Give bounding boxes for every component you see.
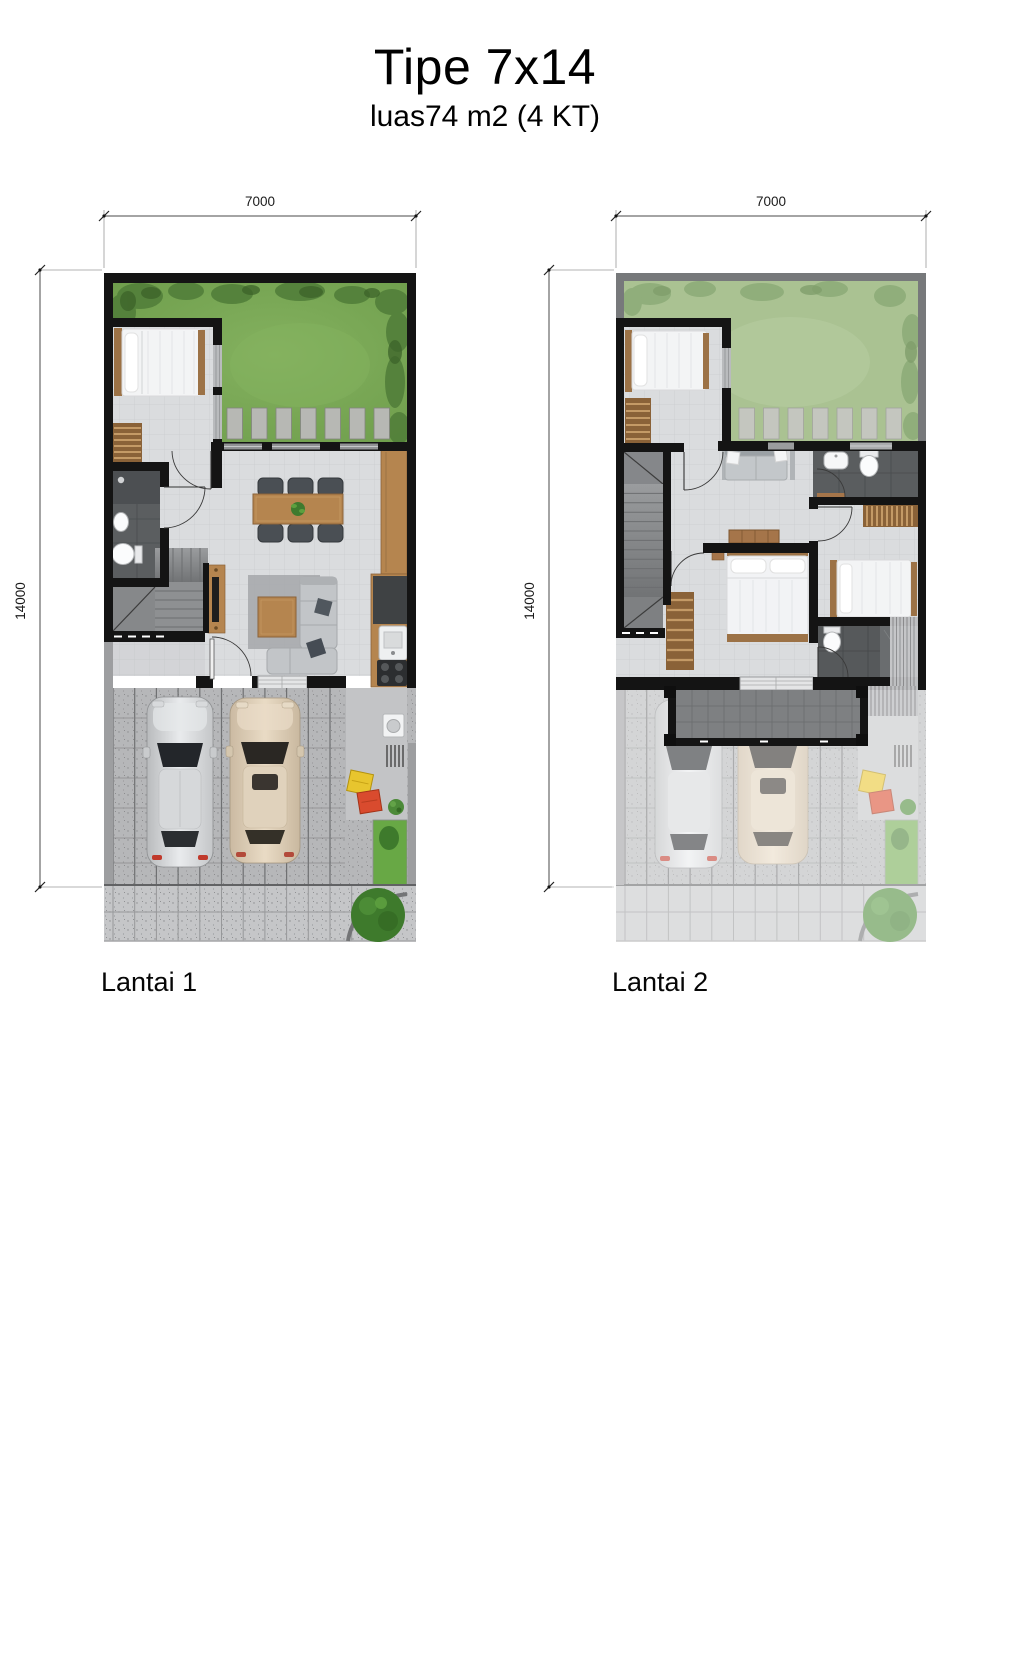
dimension-top: 7000 [611, 194, 931, 268]
kitchen-sink [379, 626, 407, 660]
washing-machine [383, 714, 404, 737]
left-fence [104, 642, 113, 885]
dim-width-label: 7000 [245, 194, 275, 209]
bin-red [357, 790, 382, 814]
sink [114, 513, 129, 532]
wardrobe [625, 398, 651, 444]
stepping-stones [739, 408, 902, 439]
dimension-left: 14000 [522, 265, 614, 892]
garden-windows [224, 444, 378, 450]
tv [212, 577, 219, 622]
bathroom [112, 471, 160, 578]
label-lantai-2: Lantai 2 [612, 967, 708, 998]
sheet-header: Tipe 7x14 luas74 m2 (4 KT) [0, 38, 970, 134]
plan-subtitle: luas74 m2 (4 KT) [0, 100, 970, 134]
hall-dresser [729, 530, 779, 543]
label-lantai-1: Lantai 1 [101, 967, 197, 998]
car-beige [226, 698, 304, 863]
stair-landing [616, 638, 663, 677]
dim-height-label: 14000 [13, 582, 28, 620]
table-plant [291, 502, 305, 516]
balcony [664, 686, 868, 746]
balcony-door [740, 677, 813, 690]
shower-head [118, 477, 124, 483]
coffee-table [258, 597, 296, 637]
loveseat [722, 447, 795, 480]
dim-height-label: 14000 [522, 582, 537, 620]
sidewalk [104, 885, 416, 942]
bed [114, 328, 205, 396]
wardrobe [113, 423, 142, 464]
car-silver [143, 697, 217, 867]
dimension-top: 7000 [99, 194, 421, 268]
staircase [624, 452, 663, 628]
stepping-stones [227, 408, 390, 439]
toilet [860, 450, 878, 477]
side-fence [408, 743, 416, 885]
kitchen-counter [381, 450, 407, 574]
grass-strip [373, 820, 407, 885]
floor-plan-sheet: Tipe 7x14 luas74 m2 (4 KT) [0, 0, 1024, 1658]
stove [377, 660, 407, 686]
dim-width-label: 7000 [756, 194, 786, 209]
floor-plan-lantai-2: 7000 14000 [490, 170, 940, 960]
street-tree [351, 888, 405, 942]
plan-title: Tipe 7x14 [0, 38, 970, 96]
bathroom-upper [813, 449, 918, 497]
wardrobe [863, 505, 918, 527]
tv-console [208, 565, 225, 633]
potted-plant [388, 799, 404, 815]
dining-set [253, 478, 343, 542]
front-window [258, 676, 307, 689]
floor-plan-lantai-1: 7000 14000 [0, 170, 440, 960]
toilet [112, 544, 142, 565]
dimension-left: 14000 [13, 265, 102, 892]
